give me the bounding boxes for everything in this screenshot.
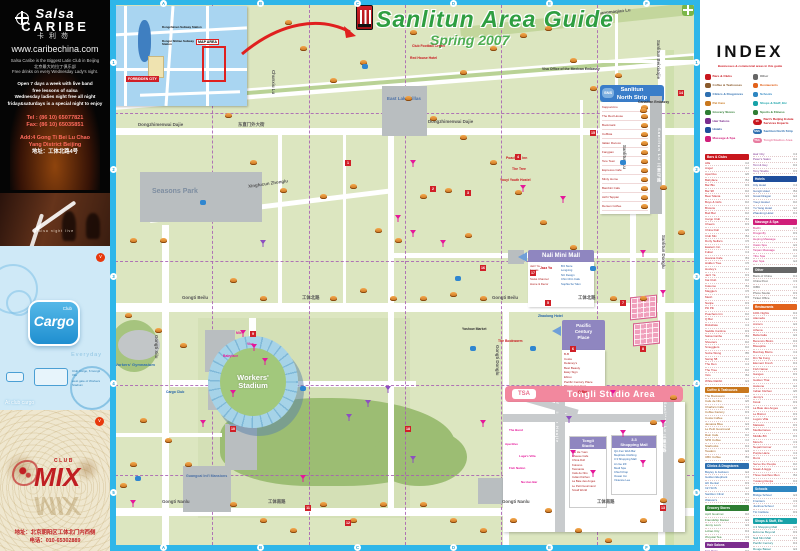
inset-street: [124, 6, 127, 106]
guangcai-mansions-block: [183, 466, 231, 512]
service-icon: [200, 200, 206, 205]
entry-name: Bar 98: [705, 189, 714, 194]
entry-ref: B4: [745, 284, 749, 289]
road-alley: [570, 60, 695, 63]
restaurant-icon: [350, 184, 357, 189]
entry-name: Nanjie: [705, 301, 714, 306]
venue-name: Vivienne Lee: [614, 478, 654, 482]
dancer-silhouette: [62, 211, 76, 241]
legend-item: Schools: [753, 92, 798, 98]
entry-name: Fish Nation: [753, 367, 768, 372]
entry-ref: C3: [745, 405, 749, 410]
venue-label: Na Huo Bar: [521, 480, 537, 484]
numbered-ad-icon: 11: [305, 505, 311, 511]
entry-name: Golden Elephant: [705, 475, 727, 480]
entry-ref: E5: [793, 389, 797, 394]
legend-item: Hair Salons: [705, 118, 750, 124]
entry-ref: D2: [793, 200, 797, 205]
restaurant-icon: [430, 116, 437, 121]
venue-label: Babyface: [223, 354, 238, 358]
grid-number-marker: 4: [110, 380, 117, 387]
entry-ref: D4: [793, 157, 797, 162]
grid-letter-marker: C: [354, 544, 361, 551]
legend-label: Bart's Beijing Estate Services Experts: [764, 118, 798, 125]
entry-ref: D3: [793, 428, 797, 433]
entry-name: SPR Coffee: [705, 438, 721, 443]
restaurant-icon: [375, 228, 382, 233]
diagram-box: [6, 372, 24, 382]
entry-name: HK Dental: [705, 481, 719, 486]
entry-name: City Hotel: [753, 183, 766, 188]
entry-ref: D4: [793, 339, 797, 344]
category-icon: [753, 83, 759, 89]
restaurant-icon: [480, 296, 487, 301]
venue-name: Aichi Teppan: [602, 195, 619, 199]
entry-ref: D2: [745, 357, 749, 362]
venue-label: Red House Hotel: [410, 56, 437, 60]
road-minor: [343, 130, 346, 306]
service-icon: [620, 160, 626, 165]
restaurant-icon: [185, 462, 192, 467]
entry-ref: C3: [745, 475, 749, 480]
entry-ref: D3: [745, 183, 749, 188]
entry-ref: D3: [793, 316, 797, 321]
entry-name: Suzie Wong: [705, 351, 721, 356]
entry-ref: D4: [745, 394, 749, 399]
entry-name: TLI Institute: [753, 510, 769, 515]
venue-label: Luga's Villa: [519, 454, 536, 458]
venue-label: The Tree: [512, 167, 526, 171]
entry-name: Luga's Villa: [753, 417, 768, 422]
restaurant-icon: [641, 141, 648, 146]
entry-name: Extreme Beyond: [753, 530, 775, 535]
service-icon: [362, 64, 368, 69]
restaurant-icon: [405, 96, 412, 101]
entry-name: Bar Blu: [705, 183, 715, 188]
restaurant-icon: [445, 188, 452, 193]
service-icon: [530, 346, 536, 351]
entry-ref: D2: [745, 306, 749, 311]
legend-item: Pet Care: [705, 101, 750, 107]
street-label: 工体南路: [268, 499, 286, 505]
entry-name: Babyface: [705, 178, 718, 183]
sns-road-bar: Sanlitun Lu 三里屯路: [650, 96, 662, 214]
entry-name: Poachers Inn: [705, 312, 723, 317]
seasons-park-block: [140, 172, 262, 222]
entry-ref: C4: [745, 250, 749, 255]
restaurant-icon: [610, 296, 617, 301]
entry-ref: E3: [793, 493, 797, 498]
grid-number-marker: 5: [110, 489, 117, 496]
entry-name: Serve the People: [753, 462, 776, 467]
tsa-badge-icon: TSA: [753, 138, 762, 144]
entry-ref: C4: [745, 323, 749, 328]
legend-label: Hotels: [713, 128, 722, 131]
entry-ref: D4: [793, 274, 797, 279]
entry-name: The Tree: [705, 368, 717, 373]
inset-forbidden-city-block: [148, 56, 164, 78]
entry-name: Three Guizhou Men: [753, 473, 780, 478]
directory-entry: White RabbitE3: [705, 379, 749, 385]
restaurant-icon: [420, 296, 427, 301]
tsa-banner: TSA Tongli Studio Area: [505, 386, 683, 402]
entry-ref: B4: [793, 296, 797, 301]
entry-name: La Baie des Anges: [753, 406, 778, 411]
restaurant-icon: [420, 502, 427, 507]
street-label: Sanlitun Beixiaojie: [656, 40, 661, 79]
street-label: 工体北路: [578, 295, 596, 301]
entry-ref: D4: [745, 416, 749, 421]
entry-name: Ganges: [753, 372, 764, 377]
entry-ref: E4: [745, 470, 749, 475]
entry-name: Heping Massage: [753, 237, 776, 242]
sns-badge: SNS: [602, 88, 614, 98]
entry-ref: E2: [745, 486, 749, 491]
entry-ref: C4: [793, 183, 797, 188]
entry-name: Q Bar: [705, 317, 713, 322]
sns-venue-row: The Red House: [602, 112, 648, 121]
entry-name: Yihe Spa: [753, 254, 765, 259]
entry-name: Hatsune: [753, 384, 764, 389]
entry-ref: D2: [745, 512, 749, 517]
street-label: 工体北路: [302, 295, 320, 301]
numbered-ad-icon: 6: [570, 346, 576, 352]
entry-name: Bank of China: [753, 274, 772, 279]
entry-name: Rumi: [753, 456, 760, 461]
entry-name: Hidden Tree: [705, 261, 721, 266]
grid-letter-marker: E: [546, 0, 553, 7]
entry-ref: D3: [793, 344, 797, 349]
entry-ref: E3: [793, 547, 797, 551]
entry-ref: D2: [745, 189, 749, 194]
caribe-website-link[interactable]: www.caribechina.com: [0, 44, 110, 54]
street-label: Chunxiu Lu: [271, 70, 276, 94]
legend-label: Massage & Spa: [713, 137, 736, 140]
entry-ref: D3: [745, 492, 749, 497]
restaurant-icon: [330, 78, 337, 83]
restaurant-icon: [515, 190, 522, 195]
entry-name: Athena: [753, 328, 763, 333]
venue-label: Cargo Club: [166, 390, 184, 394]
legend-label: Coffee & Teahouses: [713, 84, 743, 87]
restaurant-icon: [380, 502, 387, 507]
entry-name: Bayley & Jackson: [705, 470, 729, 475]
entry-name: Coffee Factory: [705, 410, 725, 415]
restaurant-icon: [330, 296, 337, 301]
entry-name: Saddle Cantina: [705, 329, 726, 334]
entry-ref: C5: [745, 261, 749, 266]
entry-ref: C4: [793, 350, 797, 355]
entry-ref: D3: [745, 301, 749, 306]
entry-ref: E5: [793, 417, 797, 422]
restaurant-icon: [465, 233, 472, 238]
dancers-caption: salsa night live: [0, 229, 110, 233]
directory-entry: Rouge BaiserE3: [753, 547, 797, 551]
legend-item: Massage & Spa: [705, 136, 750, 142]
entry-ref: E5: [745, 172, 749, 177]
street-label: Sanlitun Lu: [622, 145, 627, 169]
entry-ref: D3: [793, 248, 797, 253]
venue-label: Yashow Market: [462, 327, 487, 331]
street-label: Gongti Xilu: [154, 335, 159, 358]
entry-name: Bodhi: [753, 226, 761, 231]
entry-ref: E3: [793, 333, 797, 338]
category-icon: [753, 110, 759, 116]
category-icon: [705, 118, 711, 124]
legend-item: SNSSanlitun North Strip: [753, 129, 798, 135]
entry-ref: D2: [745, 368, 749, 373]
entry-name: Shooters: [705, 340, 717, 345]
entry-name: Toni & Guy: [753, 163, 768, 168]
entry-name: China Post: [753, 279, 768, 284]
grid-number-marker: 1: [693, 59, 700, 66]
entry-name: Golden Thai: [753, 378, 769, 383]
sanlitun-map: Seasons Park East Lake Villas Guangcai I…: [110, 0, 700, 551]
entry-name: Vics: [705, 373, 711, 378]
restaurant-icon: [320, 194, 327, 199]
restaurant-icon: [640, 108, 647, 113]
entry-ref: D3: [793, 400, 797, 405]
restaurant-icon: [660, 185, 667, 190]
entry-ref: C5: [745, 239, 749, 244]
entry-name: Int'l SOS: [705, 486, 717, 491]
guide-logo-icon: [356, 5, 373, 30]
entry-ref: B3: [745, 256, 749, 261]
inset-street: [110, 68, 247, 71]
entry-ref: D3: [793, 328, 797, 333]
legend-item: Clinics & Drugstores: [705, 92, 750, 98]
entry-ref: E2: [793, 206, 797, 211]
restaurant-icon: [450, 292, 457, 297]
service-icon: [470, 346, 476, 351]
entry-name: UBC Coffee: [705, 455, 721, 460]
entry-ref: D4: [793, 163, 797, 168]
cargo-footer: At club cargo: [5, 400, 34, 406]
venue-label: Visa Office of the Mexican Embassy: [542, 67, 600, 71]
restaurant-icon: [641, 186, 648, 191]
entry-name: Bridge School: [753, 493, 772, 498]
bar-cocktail-icon: [130, 500, 136, 507]
entry-ref: C4: [793, 451, 797, 456]
entry-name: Purple Haze: [753, 451, 770, 456]
restaurant-icon: [260, 296, 267, 301]
restaurant-icon: [285, 20, 292, 25]
entry-name: Tony Studio: [753, 169, 769, 174]
entry-ref: E5: [793, 406, 797, 411]
sns-venue-row: Bookmark: [602, 121, 648, 130]
section-header: Clinics & Drugstores: [705, 463, 749, 469]
entry-name: Kai Club: [705, 278, 716, 283]
left-ad-column: Salsa CARIBE 卡利芴 www.caribechina.com Sal…: [0, 0, 110, 551]
entry-name: Maggie's: [705, 289, 717, 294]
category-icon: [705, 136, 711, 142]
legend-item: Bars & Clubs: [705, 74, 750, 80]
entry-name: Rouge Baiser: [753, 547, 771, 551]
bar-cocktail-icon: [395, 215, 401, 222]
restaurant-icon: [250, 160, 257, 165]
restaurant-icon: [678, 230, 685, 235]
street-label: Sanlitun Donglu: [661, 235, 666, 269]
sns-venue-row: Bambini Cafe: [602, 184, 648, 193]
legend-item: Hotels: [705, 127, 750, 133]
entry-ref: D2: [745, 267, 749, 272]
entry-name: Lohao City: [705, 529, 719, 534]
pacific-century-place-header: PacificCenturyPlace: [562, 320, 605, 350]
restaurant-icon: [230, 502, 237, 507]
numbered-ad-icon: 5: [545, 300, 551, 306]
restaurant-icon: [230, 278, 237, 283]
entry-ref: D3: [793, 510, 797, 515]
restaurant-icon: [615, 73, 622, 78]
salsa-caribe-ad: Salsa CARIBE 卡利芴 www.caribechina.com Sal…: [0, 0, 110, 193]
legend-item: Coffee & Teahouses: [705, 83, 750, 89]
entry-ref: D4: [793, 211, 797, 216]
entry-name: Cafe de Niro: [705, 399, 722, 404]
nali-mini-mall-header: Nali Mini Mall: [528, 250, 594, 262]
entry-name: Jenny Lou's: [705, 523, 721, 528]
restaurant-icon: [575, 528, 582, 533]
bar-cocktail-icon: [560, 196, 566, 203]
restaurant-icon: [520, 33, 527, 38]
entry-name: Salsa Caribe: [705, 334, 722, 339]
entry-name: Photo Studio: [753, 291, 770, 296]
entry-name: Cheers: [705, 222, 715, 227]
numbered-ad-icon: 17: [530, 270, 536, 276]
entry-ref: E3: [793, 456, 797, 461]
directory-entry: TLI InstituteD3: [753, 510, 797, 516]
entry-ref: D4: [793, 311, 797, 316]
entry-name: Great Dragon: [753, 194, 771, 199]
venue-name: The Red House: [602, 114, 623, 118]
entry-name: Zen Spa: [753, 259, 764, 264]
map-title: Sanlitun Area Guide: [376, 6, 614, 33]
grid-letter-marker: D: [450, 0, 457, 7]
sns-venue-row: Minty Home: [602, 175, 648, 184]
restaurant-icon: [605, 538, 612, 543]
legend-label: Grocery Stores: [713, 111, 735, 114]
legend-label: Sanlitun North Strip: [764, 130, 793, 133]
entry-ref: D2: [745, 433, 749, 438]
entry-name: Jianhua School: [753, 504, 774, 509]
restaurant-icon: [120, 483, 127, 488]
bar-cocktail-icon: [480, 420, 486, 427]
map-border-top: [110, 0, 700, 5]
grid-letter-marker: B: [257, 544, 264, 551]
venue-label: Canadian Embassy: [638, 100, 669, 104]
venue-directory: Bars & ClubsAlfaC2AngelD2AperitivoE5Baby…: [705, 152, 797, 551]
restaurant-icon: [678, 458, 685, 463]
caribe-brand-cn: 卡利芴: [0, 33, 110, 40]
numbered-ad-icon: 14: [678, 90, 684, 96]
diagram-caption: west gate of Workers Stadium: [72, 380, 102, 388]
entry-ref: D4: [745, 529, 749, 534]
restaurant-icon: [410, 30, 417, 35]
service-icon: [590, 266, 596, 271]
entry-name: Pacific Century: [753, 541, 773, 546]
entry-name: Bud Bar: [705, 211, 716, 216]
restaurant-icon: [640, 296, 647, 301]
entry-ref: E5: [745, 399, 749, 404]
restaurant-icon: [641, 150, 648, 155]
inset-forbidden-city-label: FORBIDDEN CITY: [126, 76, 159, 82]
restaurant-icon: [650, 420, 657, 425]
section-header: Massage & Spa: [753, 219, 797, 225]
tsa-title: Tongli Studio Area: [541, 387, 681, 402]
restaurant-icon: [510, 518, 517, 523]
category-icon: [705, 110, 711, 116]
entry-ref: D2: [745, 312, 749, 317]
legend-label: Other: [760, 75, 768, 78]
entry-name: Swing 58: [705, 357, 717, 362]
workers-stadium: Workers' Stadium: [208, 336, 298, 428]
13-badge-icon: 13: [753, 119, 762, 125]
section-header: Grocery Stores: [705, 505, 749, 511]
restaurant-icon: [460, 135, 467, 140]
entry-name: 1001 Nights: [753, 311, 769, 316]
entry-ref: D3: [793, 536, 797, 541]
caribe-address: Add:4 Gong Ti Bei Lu Chao Yang District …: [0, 135, 110, 155]
grid-number-marker: 2: [693, 166, 700, 173]
grid-number-marker: 3: [110, 273, 117, 280]
club-mix-ad: v CLUB MIX MIX 地址：北京朝阳区工体北门内西侧 电话：010-65…: [0, 410, 110, 551]
road-alley: [615, 14, 618, 94]
restaurant-icon: [545, 508, 552, 513]
entry-ref: E3: [793, 356, 797, 361]
entry-name: Havana Cafe: [705, 256, 723, 261]
stadium-lake-park: [372, 428, 467, 486]
grid-line: [309, 5, 310, 545]
entry-name: Aperitivo: [705, 172, 717, 177]
entry-ref: E5: [793, 525, 797, 530]
grid-number-marker: 2: [110, 166, 117, 173]
inset-map-area-label: MAP AREA: [196, 39, 219, 45]
section-header: Restaurants: [753, 304, 797, 310]
bar-cocktail-icon: [440, 240, 446, 247]
restaurant-icon: [460, 70, 467, 75]
entry-ref: C3: [793, 499, 797, 504]
entry-ref: D2: [745, 345, 749, 350]
index-subtitle: Businesses & commercial areas in this gu…: [700, 64, 800, 68]
restaurant-icon: [300, 46, 307, 51]
legend-label: Pet Care: [713, 102, 726, 105]
entry-ref: C3: [745, 535, 749, 540]
venue-label: Mix: [236, 331, 242, 335]
entry-ref: E5: [745, 228, 749, 233]
legend-item: Grocery Stores: [705, 110, 750, 116]
entry-name: Zhaolong Hotel: [753, 211, 773, 216]
entry-ref: B4: [793, 473, 797, 478]
restaurant-icon: [570, 245, 577, 250]
directory-entry: Zen SpaE4: [753, 259, 797, 265]
entry-name: Charlie's Cafe: [705, 405, 724, 410]
restaurant-icon: [225, 113, 232, 118]
entry-ref: D3: [793, 291, 797, 296]
legend-item: Shops & Stuff, Etc: [753, 101, 798, 107]
entry-ref: B4: [745, 373, 749, 378]
entry-ref: D3: [793, 530, 797, 535]
restaurant-icon: [140, 418, 147, 423]
road-chunxiu-lu: [278, 130, 282, 306]
restaurant-icon: [545, 26, 552, 31]
restaurant-icon: [130, 462, 137, 467]
numbered-ad-icon: 15: [590, 130, 596, 136]
entry-name: Wuyutai Tea: [705, 535, 721, 540]
legend-item: Sports & Fitness: [753, 110, 798, 116]
restaurant-icon: [480, 528, 487, 533]
entry-name: Din Tai Fung: [753, 356, 770, 361]
entry-name: Club Mix: [705, 234, 717, 239]
numbered-ad-icon: 2: [430, 186, 436, 192]
